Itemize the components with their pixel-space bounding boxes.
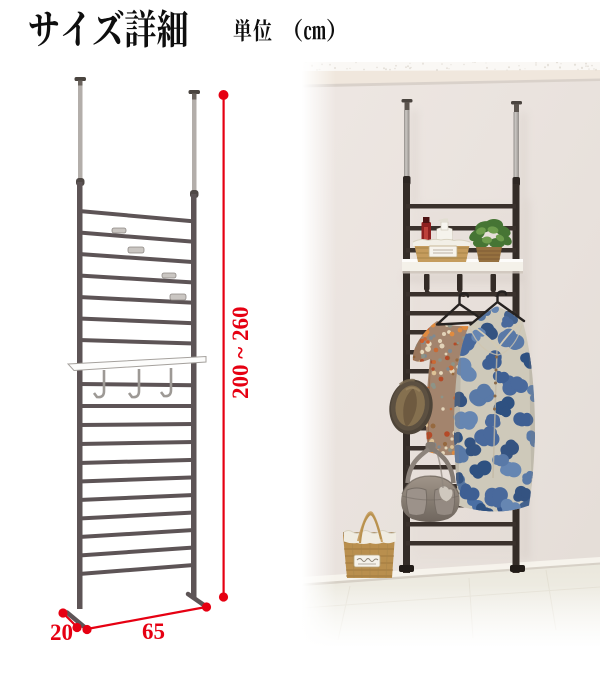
svg-text:20: 20: [50, 620, 73, 645]
svg-text:200 ~ 260: 200 ~ 260: [228, 307, 253, 399]
svg-text:65: 65: [142, 619, 165, 644]
